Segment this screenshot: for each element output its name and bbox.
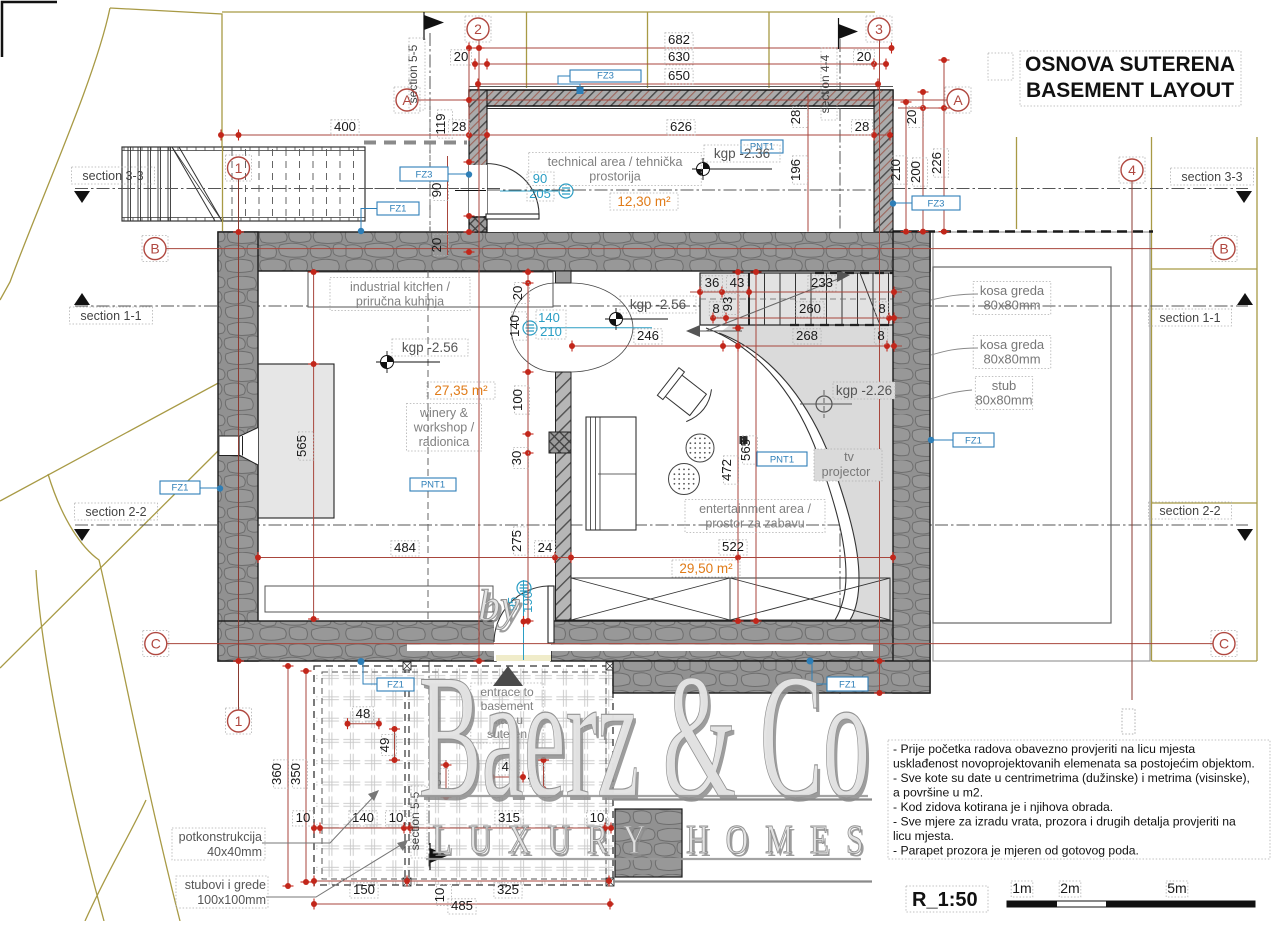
svg-text:36: 36 <box>705 275 720 290</box>
svg-text:20: 20 <box>429 238 444 253</box>
svg-text:kosa greda: kosa greda <box>980 337 1045 352</box>
svg-text:stubovi i grede: stubovi i grede <box>185 878 266 892</box>
svg-text:industrial kitchen /: industrial kitchen / <box>350 280 451 294</box>
svg-text:565: 565 <box>738 439 753 461</box>
svg-text:630: 630 <box>668 49 690 64</box>
svg-text:section 2-2: section 2-2 <box>85 505 146 519</box>
svg-text:27,35 m²: 27,35 m² <box>434 383 488 398</box>
svg-text:PNT1: PNT1 <box>770 455 794 466</box>
svg-text:4: 4 <box>1128 162 1136 178</box>
svg-text:400: 400 <box>334 119 356 134</box>
svg-text:20: 20 <box>904 110 919 125</box>
svg-text:119: 119 <box>433 113 448 134</box>
svg-text:R_1:50: R_1:50 <box>912 889 978 911</box>
svg-text:section 1-1: section 1-1 <box>1159 311 1220 325</box>
svg-text:kgp -2.56: kgp -2.56 <box>402 340 458 355</box>
svg-text:FZ1: FZ1 <box>387 680 404 691</box>
svg-text:226: 226 <box>929 152 944 174</box>
svg-text:43: 43 <box>730 275 745 290</box>
svg-text:section 3-3: section 3-3 <box>82 169 143 183</box>
svg-text:20: 20 <box>857 49 872 64</box>
svg-text:80x80mm: 80x80mm <box>983 298 1040 313</box>
svg-text:B: B <box>1219 241 1228 257</box>
svg-text:10: 10 <box>296 810 311 825</box>
svg-text:30: 30 <box>509 451 524 466</box>
svg-text:- Parapet prozora je mjeren od: - Parapet prozora je mjeren od gotovog p… <box>893 844 1139 858</box>
svg-text:260: 260 <box>799 301 821 316</box>
svg-text:472: 472 <box>719 459 734 481</box>
svg-text:484: 484 <box>394 540 416 555</box>
svg-text:80x80mm: 80x80mm <box>975 393 1032 408</box>
svg-text:268: 268 <box>796 328 818 343</box>
svg-text:FZ1: FZ1 <box>390 204 407 215</box>
svg-text:winery &: winery & <box>419 406 469 420</box>
svg-text:2: 2 <box>474 21 482 37</box>
svg-text:650: 650 <box>668 68 690 83</box>
svg-text:8: 8 <box>712 301 719 316</box>
svg-text:8: 8 <box>877 328 884 343</box>
svg-text:- Prije početka radova obavezn: - Prije početka radova obavezno provjeri… <box>893 742 1195 756</box>
svg-text:24: 24 <box>538 540 553 555</box>
svg-text:B: B <box>150 241 159 257</box>
svg-text:29,50 m²: 29,50 m² <box>679 561 733 576</box>
svg-text:tv: tv <box>844 450 854 464</box>
svg-text:entertainment area /: entertainment area / <box>699 502 811 516</box>
svg-text:205: 205 <box>529 186 551 201</box>
svg-text:- Kod zidova kotirana je i nji: - Kod zidova kotirana je i njihova obrad… <box>893 800 1113 814</box>
svg-text:prostorija: prostorija <box>589 170 640 184</box>
svg-text:360: 360 <box>269 763 284 785</box>
svg-text:682: 682 <box>668 32 690 47</box>
svg-text:section 1-1: section 1-1 <box>80 309 141 323</box>
svg-text:210: 210 <box>540 324 562 339</box>
svg-text:kgp -2.36: kgp -2.36 <box>714 146 770 161</box>
svg-text:12,30 m²: 12,30 m² <box>617 194 671 209</box>
svg-text:28: 28 <box>788 110 803 125</box>
svg-text:FZ3: FZ3 <box>416 170 433 181</box>
svg-text:potkonstrukcija: potkonstrukcija <box>179 830 262 844</box>
svg-text:section 2-2: section 2-2 <box>1159 504 1220 518</box>
svg-text:C: C <box>151 636 161 652</box>
svg-text:325: 325 <box>497 882 519 897</box>
svg-text:20: 20 <box>510 286 525 301</box>
svg-text:565: 565 <box>294 435 309 457</box>
svg-text:- Sve kote su date u centrimet: - Sve kote su date u centrimetrima (duži… <box>893 771 1250 785</box>
svg-text:140: 140 <box>352 810 374 825</box>
svg-text:A: A <box>953 92 963 108</box>
svg-text:radionica: radionica <box>419 435 470 449</box>
svg-text:28: 28 <box>855 119 870 134</box>
svg-text:48: 48 <box>356 706 371 721</box>
svg-text:49: 49 <box>377 738 392 753</box>
svg-text:- Sve mjere za izradu vrata, p: - Sve mjere za izradu vrata, prozora i d… <box>893 815 1236 829</box>
svg-text:Baerz & Co: Baerz & Co <box>419 637 870 834</box>
svg-text:C: C <box>1219 636 1229 652</box>
svg-text:93: 93 <box>720 297 735 312</box>
svg-text:kosa greda: kosa greda <box>980 283 1045 298</box>
svg-text:prostor za zabavu: prostor za zabavu <box>705 517 804 531</box>
svg-text:80x80mm: 80x80mm <box>983 352 1040 367</box>
svg-text:usklađenost novoprojektovanih: usklađenost novoprojektovanih elemenata … <box>893 757 1255 771</box>
svg-text:OSNOVA SUTERENA: OSNOVA SUTERENA <box>1025 53 1235 76</box>
svg-text:275: 275 <box>509 530 524 552</box>
svg-text:workshop /: workshop / <box>413 421 475 435</box>
svg-text:3: 3 <box>875 21 883 37</box>
svg-text:233: 233 <box>811 275 833 290</box>
svg-text:40x40mm: 40x40mm <box>207 845 262 859</box>
svg-text:kgp -2.56: kgp -2.56 <box>630 297 686 312</box>
svg-text:a površine u m2.: a površine u m2. <box>893 786 983 800</box>
svg-text:5m: 5m <box>1167 880 1186 896</box>
svg-text:90: 90 <box>533 171 547 186</box>
svg-text:140: 140 <box>538 310 560 325</box>
svg-text:140: 140 <box>507 315 522 337</box>
svg-text:150: 150 <box>353 882 375 897</box>
svg-text:100x100mm: 100x100mm <box>197 893 266 907</box>
svg-text:100: 100 <box>510 389 525 411</box>
svg-text:350: 350 <box>288 763 303 785</box>
svg-text:priručna kuhinja: priručna kuhinja <box>356 295 444 309</box>
svg-text:FZ3: FZ3 <box>928 199 945 210</box>
svg-text:licu mjesta.: licu mjesta. <box>893 829 954 843</box>
svg-text:1m: 1m <box>1012 880 1031 896</box>
svg-text:LUXURY HOMES: LUXURY HOMES <box>432 816 880 862</box>
svg-text:2m: 2m <box>1060 880 1079 896</box>
svg-text:projector: projector <box>822 465 871 479</box>
svg-text:246: 246 <box>637 328 659 343</box>
svg-text:10: 10 <box>432 888 447 903</box>
svg-text:28: 28 <box>452 119 467 134</box>
svg-text:PNT1: PNT1 <box>421 480 445 491</box>
svg-text:by: by <box>478 581 520 630</box>
svg-text:200: 200 <box>908 161 923 183</box>
svg-text:technical area / tehnička: technical area / tehnička <box>548 155 683 169</box>
svg-text:210: 210 <box>888 159 903 181</box>
svg-text:196: 196 <box>788 159 803 181</box>
svg-text:90: 90 <box>429 183 444 198</box>
svg-text:626: 626 <box>670 119 692 134</box>
svg-text:20: 20 <box>454 49 469 64</box>
svg-text:10: 10 <box>389 810 404 825</box>
svg-text:1: 1 <box>235 160 243 176</box>
svg-text:BASEMENT LAYOUT: BASEMENT LAYOUT <box>1026 79 1234 102</box>
svg-text:section 3-3: section 3-3 <box>1181 170 1242 184</box>
svg-text:485: 485 <box>451 898 473 913</box>
svg-text:522: 522 <box>722 539 744 554</box>
svg-text:stub: stub <box>992 378 1017 393</box>
svg-text:8: 8 <box>878 301 885 316</box>
svg-text:FZ1: FZ1 <box>172 483 189 494</box>
svg-text:kgp -2.26: kgp -2.26 <box>836 383 892 398</box>
svg-text:section 4-4: section 4-4 <box>818 54 832 113</box>
svg-text:A: A <box>402 92 412 108</box>
svg-text:1: 1 <box>235 713 243 729</box>
svg-text:FZ1: FZ1 <box>965 436 982 447</box>
svg-text:FZ3: FZ3 <box>597 71 614 82</box>
